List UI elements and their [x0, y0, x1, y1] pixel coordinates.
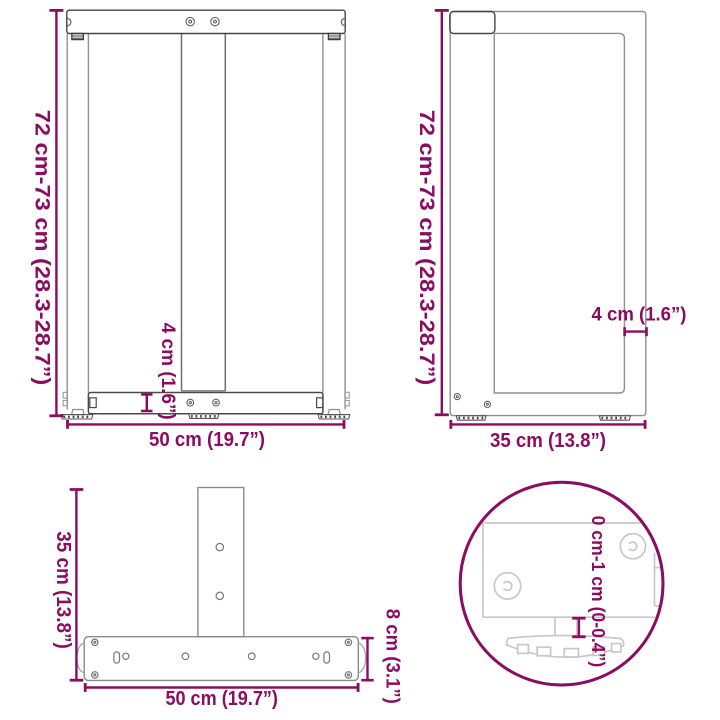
svg-text:4 cm (1.6”): 4 cm (1.6”): [592, 304, 687, 326]
svg-text:8 cm (3.1”): 8 cm (3.1”): [381, 609, 402, 704]
svg-text:35 cm (13.8”): 35 cm (13.8”): [52, 531, 74, 649]
svg-text:50 cm (19.7”): 50 cm (19.7”): [149, 429, 265, 451]
svg-text:4 cm (1.6”): 4 cm (1.6”): [157, 323, 179, 420]
svg-text:72 cm-73 cm (28.3-28.7”): 72 cm-73 cm (28.3-28.7”): [31, 110, 54, 386]
svg-text:35 cm (13.8”): 35 cm (13.8”): [490, 430, 606, 452]
svg-text:72 cm-73 cm (28.3-28.7”): 72 cm-73 cm (28.3-28.7”): [415, 110, 438, 386]
svg-text:50 cm (19.7”): 50 cm (19.7”): [165, 688, 278, 710]
svg-text:0 cm-1 cm (0-0.4”): 0 cm-1 cm (0-0.4”): [588, 516, 609, 668]
